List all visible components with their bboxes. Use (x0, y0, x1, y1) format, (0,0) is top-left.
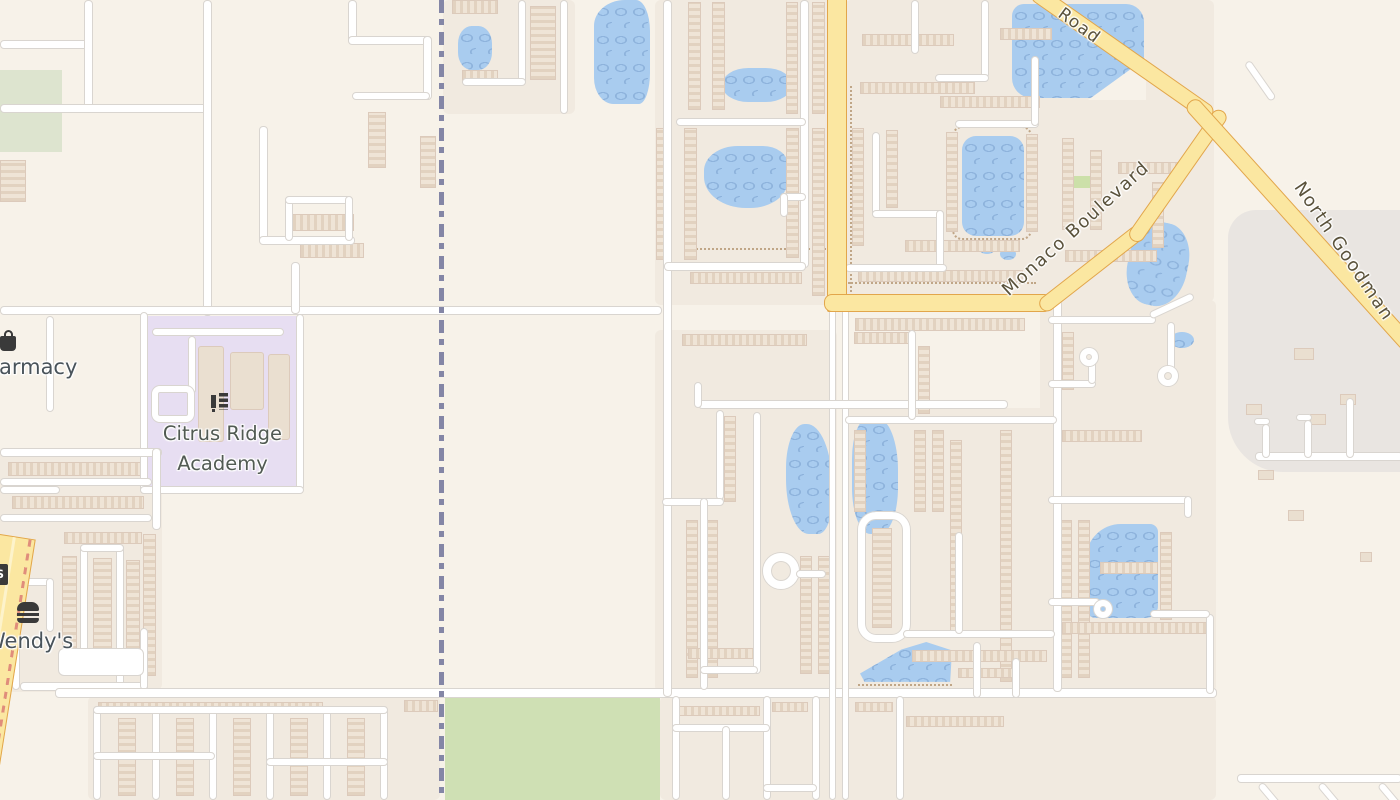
road-segment (0, 40, 92, 49)
building-row (1026, 134, 1038, 232)
road-segment (700, 666, 758, 674)
road-segment (903, 630, 1055, 638)
building-row (905, 240, 1020, 252)
road-segment (973, 642, 981, 698)
patty (17, 613, 39, 616)
building-row (64, 532, 142, 544)
road-segment (462, 78, 526, 86)
road-segment (663, 0, 672, 697)
road-segment (0, 478, 152, 486)
building-row (300, 243, 364, 258)
road-segment (518, 0, 526, 84)
building-row (946, 132, 958, 232)
footpath (858, 684, 952, 686)
road-segment (672, 724, 770, 732)
building-row (855, 702, 893, 712)
building-row (688, 648, 760, 659)
road-segment (285, 196, 353, 204)
road-segment (188, 336, 196, 394)
road-segment (203, 0, 212, 316)
road-segment (1346, 398, 1354, 458)
building-row (684, 128, 697, 260)
road-segment (698, 400, 1008, 409)
road-segment (93, 706, 388, 714)
road-segment (259, 236, 355, 245)
map-canvas[interactable]: $ Pharmacy Wendy's Citrus Ridge Academy … (0, 0, 1400, 800)
bun-top (17, 602, 39, 611)
road-segment (676, 118, 806, 126)
road-segment (829, 307, 836, 800)
road-segment (140, 486, 304, 494)
road-segment (780, 193, 788, 217)
road-segment (1244, 60, 1277, 102)
road-segment (0, 486, 60, 494)
building-row (1062, 430, 1142, 442)
park-area (445, 696, 660, 800)
school-icon-bar (211, 395, 216, 408)
road-segment (1150, 610, 1210, 618)
road-segment (84, 0, 93, 112)
road-segment (662, 498, 724, 506)
cul-de-sac (1080, 348, 1098, 366)
road-segment (1296, 414, 1312, 421)
road-segment (259, 126, 268, 244)
building-row (420, 136, 436, 188)
road-segment (694, 382, 702, 408)
building-row (940, 96, 1040, 108)
major-road-vertical (827, 0, 847, 312)
road-segment (722, 726, 730, 800)
building-row (854, 430, 866, 512)
road-segment (0, 514, 152, 522)
road-segment (1262, 424, 1270, 458)
road-segment (1048, 496, 1190, 504)
road-segment (800, 0, 809, 268)
road-segment (981, 0, 989, 78)
building-row (233, 718, 251, 796)
pond (722, 68, 792, 102)
building-row (1100, 562, 1158, 574)
building-row (932, 430, 944, 512)
school-icon-lines (219, 393, 228, 410)
footpath (952, 126, 1032, 240)
road-segment (323, 706, 331, 800)
building-row (772, 702, 808, 712)
building-row (862, 34, 954, 46)
building-row (812, 2, 825, 114)
road-segment (0, 448, 162, 457)
shopping-bag-icon[interactable] (0, 330, 17, 352)
road-segment (935, 74, 989, 82)
road-segment (872, 210, 944, 218)
building-row (676, 706, 760, 716)
road-segment (46, 578, 54, 632)
admin-boundary-line (439, 0, 444, 800)
pond (594, 0, 650, 104)
school-icon[interactable] (211, 393, 231, 413)
road-segment (0, 306, 662, 315)
road-loop (152, 386, 194, 422)
pond (704, 146, 788, 208)
major-road-monaco (824, 294, 1052, 312)
road-segment (908, 330, 916, 420)
building-row (690, 272, 802, 284)
road-segment (152, 328, 284, 336)
road-segment (716, 410, 724, 500)
building-row (724, 416, 736, 502)
building-row (958, 668, 1016, 678)
road-segment (352, 92, 430, 100)
road-segment (845, 264, 947, 272)
bag-body (0, 336, 16, 351)
building-row (712, 2, 725, 110)
building-row (0, 160, 26, 202)
road-segment (348, 36, 432, 45)
building-row (1000, 28, 1052, 40)
road-segment (700, 498, 708, 690)
burger-icon[interactable] (17, 602, 39, 624)
building (1288, 510, 1304, 521)
building-row (682, 334, 807, 346)
building-row (914, 430, 926, 512)
building-row (688, 2, 701, 110)
road-segment (1012, 658, 1020, 698)
road-segment (896, 696, 904, 800)
building-row (404, 700, 438, 712)
cul-de-sac (1094, 600, 1112, 618)
road-segment (664, 262, 806, 271)
building-row (12, 496, 144, 509)
building-row (860, 82, 975, 94)
road-segment (345, 196, 353, 241)
road-segment (1317, 781, 1350, 800)
poi-label-pharmacy[interactable]: Pharmacy (0, 355, 77, 379)
road-segment (93, 752, 215, 760)
bun-bottom (17, 618, 39, 623)
building-row (786, 2, 798, 114)
building-row (1062, 622, 1210, 634)
road-segment (1048, 316, 1156, 324)
road-segment (1255, 452, 1400, 461)
building-row (812, 128, 825, 296)
road-segment (291, 262, 300, 314)
road-segment (763, 784, 817, 792)
road-segment (672, 696, 680, 800)
school-building (230, 352, 264, 410)
cul-de-sac (763, 553, 799, 589)
building-row (368, 112, 386, 168)
school-label-line2: Academy (140, 449, 305, 479)
building-row (852, 128, 864, 246)
road-segment (955, 532, 963, 634)
road-segment (266, 706, 274, 800)
road-segment (1031, 56, 1039, 126)
road-segment (1257, 781, 1290, 800)
road-segment (842, 307, 849, 800)
building (1310, 414, 1326, 425)
road-segment (1377, 781, 1400, 800)
building-row (347, 718, 365, 796)
road-segment (80, 544, 124, 552)
building-row (854, 332, 910, 344)
road-segment (1254, 418, 1270, 425)
road-segment (936, 210, 944, 268)
school-icon-dot (212, 409, 215, 412)
road-segment (796, 570, 826, 578)
road-segment (1167, 322, 1175, 370)
road-segment (911, 0, 919, 54)
building-row (452, 0, 498, 14)
building (1360, 552, 1372, 562)
road-loop (858, 512, 910, 642)
road-segment (1184, 496, 1192, 518)
road-segment (423, 36, 432, 100)
poi-label-school[interactable]: Citrus Ridge Academy (140, 419, 305, 479)
road-segment (266, 758, 388, 766)
road-segment (872, 132, 880, 218)
road-segment (753, 412, 761, 674)
road-segment (845, 416, 1057, 424)
cul-de-sac (1158, 366, 1178, 386)
building (1294, 348, 1314, 360)
road-segment (1304, 420, 1312, 458)
poi-label-wendys[interactable]: Wendy's (0, 629, 73, 653)
road-segment (55, 688, 1217, 698)
road-segment (1048, 598, 1100, 606)
building-row (290, 718, 308, 796)
building-row (1160, 532, 1172, 620)
building-row (8, 462, 146, 476)
road-segment (560, 0, 568, 114)
road-segment (380, 706, 388, 800)
pond (458, 26, 492, 70)
road-segment (955, 120, 1039, 128)
building-row (855, 318, 1025, 331)
road-segment (0, 104, 212, 113)
building-row (530, 6, 556, 80)
partial-poi-icon[interactable]: $ (0, 564, 8, 585)
building-row (906, 716, 1004, 727)
building-row (886, 130, 898, 208)
road-segment (1206, 614, 1214, 694)
building-row (1000, 430, 1012, 682)
building (1258, 470, 1274, 480)
school-label-line1: Citrus Ridge (140, 419, 305, 449)
building (1246, 404, 1262, 415)
